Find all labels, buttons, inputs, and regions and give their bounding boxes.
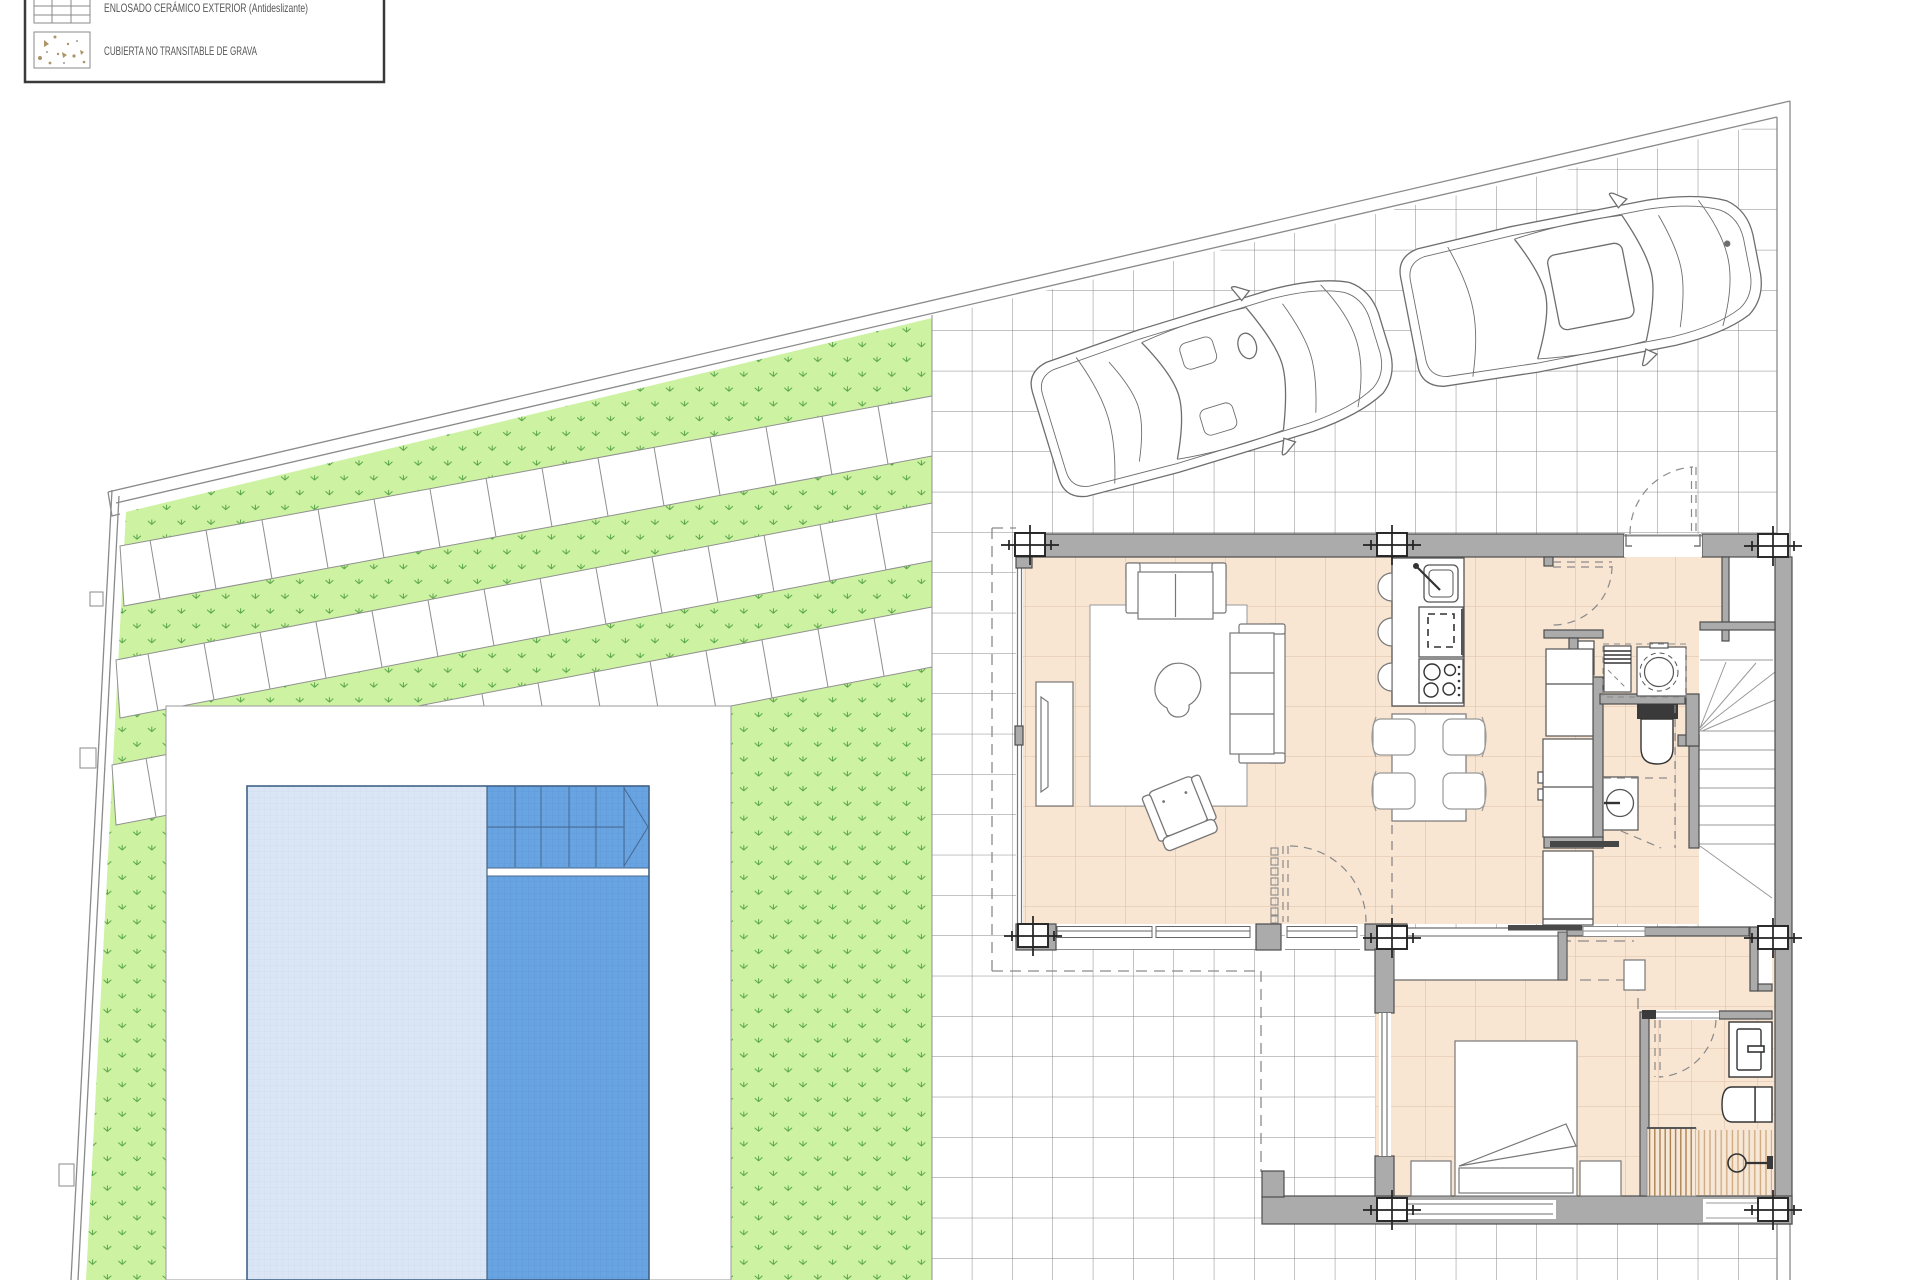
svg-text:CUBIERTA NO TRANSITABLE DE GRA: CUBIERTA NO TRANSITABLE DE GRAVA [104, 44, 257, 58]
svg-text:ENLOSADO CERÁMICO EXTERIOR (An: ENLOSADO CERÁMICO EXTERIOR (Antideslizan… [104, 0, 308, 15]
